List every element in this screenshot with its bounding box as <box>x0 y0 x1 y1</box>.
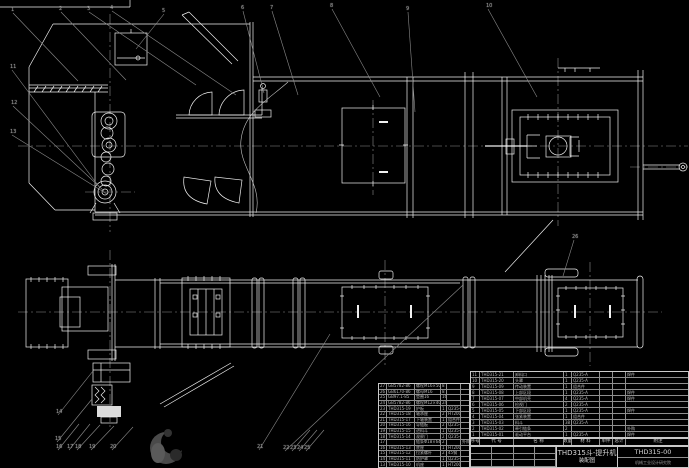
bom-cell <box>600 432 613 437</box>
part-callout: 8 <box>330 4 333 9</box>
part-callout: 22 <box>283 446 289 451</box>
drawing-doc-type: 装配图 <box>579 458 596 464</box>
revision-cell <box>492 454 513 461</box>
bom-cell: 单件 <box>600 439 613 445</box>
revision-cell <box>514 460 535 467</box>
revision-cell <box>471 447 492 454</box>
elevation-view-geometry <box>0 0 687 220</box>
bom-cell: 数量 <box>564 439 572 445</box>
part-callout: 14 <box>56 410 62 415</box>
bom-row: 13THD315-10机座1HT200 <box>379 461 469 467</box>
bom-row: 1THD315-01驱动平台1Q235-A焊件 <box>471 431 688 437</box>
part-callout: 18 <box>75 445 81 450</box>
part-callout: 3 <box>87 7 90 12</box>
break-line <box>241 82 288 213</box>
parts-list-right: 11THD315-21卸料口1Q235-A焊件10THD315-20头罩1Q23… <box>470 371 689 438</box>
bom-cell: 13 <box>379 462 387 467</box>
cad-drawing-page: 1234567891011121314151617181920212223242… <box>0 0 689 468</box>
bom-cell: 材 料 <box>572 439 600 445</box>
bom-cell: THD315-01 <box>480 432 514 437</box>
part-callout: 9 <box>406 7 409 12</box>
parts-list-left: 27GB5782-86螺栓M16×50826GB6170-86螺母M16825G… <box>378 383 470 468</box>
part-callout: 26 <box>572 235 578 240</box>
revision-cell <box>514 447 535 454</box>
part-callout: 23 <box>290 446 296 451</box>
parts-list-header: 序号代 号名 称数量材 料单件总计附注 <box>470 438 689 446</box>
revision-cell <box>535 454 556 461</box>
part-callout: 21 <box>257 445 263 450</box>
bom-cell: 附注 <box>626 439 689 445</box>
bom-cell: THD315-10 <box>387 462 415 467</box>
drawing-number-cell: THD315-00 机械工业设计研究院 <box>618 447 688 467</box>
bom-cell: 驱动平台 <box>514 432 564 437</box>
bom-cell: 名 称 <box>514 439 564 445</box>
company-name: 机械工业设计研究院 <box>618 457 688 467</box>
revision-cell <box>514 454 535 461</box>
revision-cell <box>471 460 492 467</box>
part-callout: 7 <box>270 6 273 11</box>
part-callout: 4 <box>110 6 113 11</box>
part-callout: 24 <box>297 446 303 451</box>
part-callout: 5 <box>162 9 165 14</box>
part-callout: 25 <box>304 446 310 451</box>
center-lines <box>18 14 688 428</box>
title-block: THD315斗-提升机 装配图 THD315-00 机械工业设计研究院 <box>470 446 689 468</box>
part-callout: 16 <box>56 445 62 450</box>
bom-cell: 机座 <box>415 462 441 467</box>
part-callout: 17 <box>67 445 73 450</box>
drawing-number: THD315-00 <box>618 447 688 457</box>
part-callout: 12 <box>11 101 17 106</box>
bom-cell: 焊件 <box>626 432 689 437</box>
revision-cell <box>535 460 556 467</box>
part-callout: 10 <box>486 4 492 9</box>
bom-cell: HT200 <box>447 462 461 467</box>
part-callout: 19 <box>89 445 95 450</box>
part-callout: 15 <box>55 437 61 442</box>
part-callout: 2 <box>59 7 62 12</box>
revision-cell <box>471 454 492 461</box>
bom-cell: 序号 <box>471 439 480 445</box>
part-callout: 1 <box>11 8 14 13</box>
bom-cell: 代 号 <box>480 439 514 445</box>
bom-cell: 总计 <box>613 439 626 445</box>
part-callout: 13 <box>10 130 16 135</box>
revision-cell <box>535 447 556 454</box>
bom-cell: Q235-A <box>572 432 600 437</box>
revision-grid <box>471 447 556 467</box>
drawing-title: THD315斗-提升机 <box>558 450 617 458</box>
part-callout: 11 <box>10 65 16 70</box>
ink-stamp <box>150 429 185 464</box>
revision-cell <box>492 460 513 467</box>
bom-cell: 1 <box>564 432 572 437</box>
revision-cell <box>492 447 513 454</box>
bom-cell <box>613 432 626 437</box>
bom-cell: 1 <box>471 432 480 437</box>
part-callout: 20 <box>110 445 116 450</box>
part-callout: 6 <box>241 6 244 11</box>
bom-row: 序号代 号名 称数量材 料单件总计附注 <box>471 439 688 445</box>
drawing-title-cell: THD315斗-提升机 装配图 <box>556 447 618 467</box>
